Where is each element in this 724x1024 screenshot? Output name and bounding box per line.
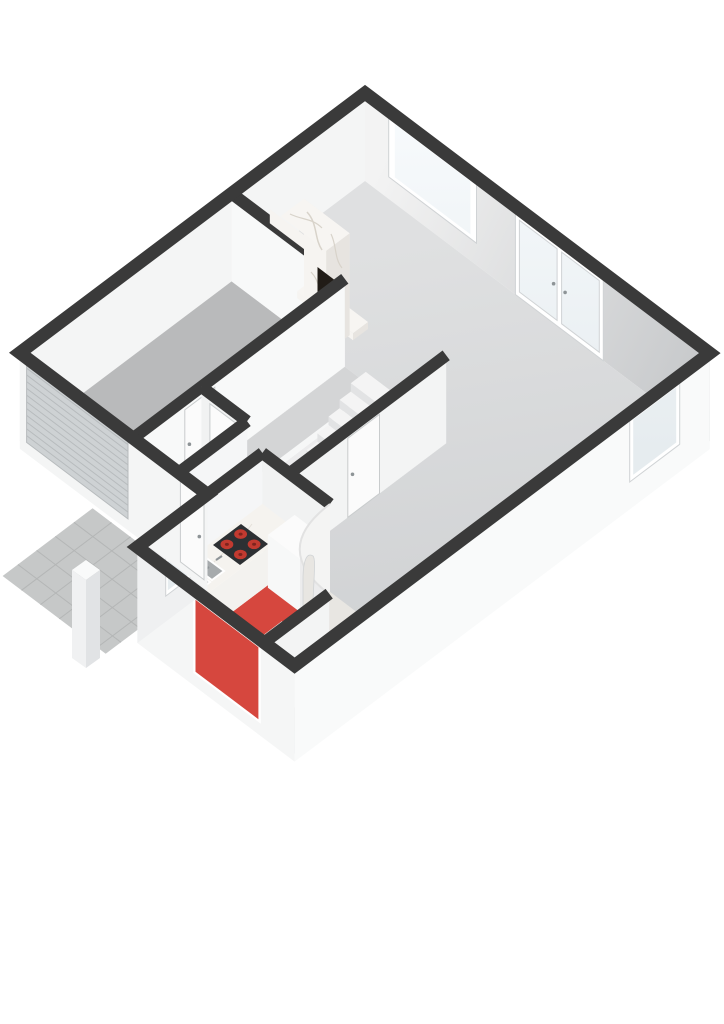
- living-french-doors-handle-r: [563, 291, 567, 295]
- cooktop-burners-center: [252, 543, 256, 546]
- living-french-doors-handle-l: [552, 282, 556, 286]
- cooktop-burners-center: [225, 543, 229, 546]
- floorplan-page: [0, 0, 724, 1024]
- porch-column-left-face: [72, 570, 86, 668]
- garage-interior-door-handle: [188, 442, 192, 446]
- porch-column-right-face: [86, 570, 100, 668]
- front-door-handle: [198, 535, 202, 539]
- scene-root: [3, 93, 710, 762]
- cooktop-burners-center: [239, 533, 243, 536]
- cooktop-burners-center: [238, 553, 242, 556]
- floorplan-3d-render: [0, 0, 724, 1024]
- hall-living-door-handle: [351, 473, 355, 477]
